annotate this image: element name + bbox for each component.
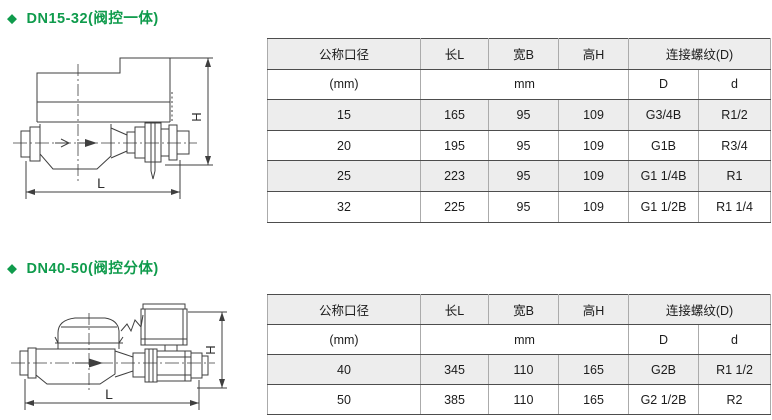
cell-b: 110 bbox=[489, 355, 559, 385]
cell-thread-d: R1/2 bbox=[699, 100, 771, 131]
dim-label-l: L bbox=[105, 386, 113, 402]
cell-h: 165 bbox=[559, 355, 629, 385]
table-row: 15 165 95 109 G3/4B R1/2 bbox=[268, 100, 771, 131]
col-header-length: 长L bbox=[421, 295, 489, 325]
meter-body-outline bbox=[36, 349, 115, 384]
table-row: 32 225 95 109 G1 1/2B R1 1/4 bbox=[268, 191, 771, 222]
col-header-height: 高H bbox=[559, 39, 629, 70]
cell-dn: 20 bbox=[268, 130, 421, 161]
unit-thread-d: d bbox=[699, 325, 771, 355]
cell-l: 345 bbox=[421, 355, 489, 385]
table-row: 50 385 110 165 G2 1/2B R2 bbox=[268, 385, 771, 415]
cell-dn: 25 bbox=[268, 161, 421, 192]
union-nut bbox=[145, 349, 157, 382]
spec-sheet-page: ◆ DN15-32(阀控一体) bbox=[0, 0, 772, 420]
cell-dn: 32 bbox=[268, 191, 421, 222]
cell-b: 95 bbox=[489, 161, 559, 192]
table-row: 20 195 95 109 G1B R3/4 bbox=[268, 130, 771, 161]
cell-h: 109 bbox=[559, 130, 629, 161]
unit-dims: mm bbox=[421, 69, 629, 100]
cell-h: 109 bbox=[559, 100, 629, 131]
meter-diagram-dn15-32: H L bbox=[5, 42, 260, 237]
flow-arrow-icon bbox=[85, 139, 97, 147]
cell-dn: 40 bbox=[268, 355, 421, 385]
col-header-diameter: 公称口径 bbox=[268, 39, 421, 70]
register-dome-outline bbox=[58, 318, 119, 343]
table-unit-row: (mm) mm D d bbox=[268, 69, 771, 100]
cell-thread-D: G2B bbox=[629, 355, 699, 385]
cell-dn: 50 bbox=[268, 385, 421, 415]
cell-l: 165 bbox=[421, 100, 489, 131]
spec-table-dn40-50: 公称口径 长L 宽B 高H 连接螺纹(D) (mm) mm D d 40 345… bbox=[267, 294, 771, 415]
dim-label-h: H bbox=[203, 345, 218, 354]
section-title-text: DN40-50(阀控分体) bbox=[27, 257, 159, 278]
actuator-box-outline bbox=[141, 309, 187, 345]
cell-b: 95 bbox=[489, 191, 559, 222]
section-title-text: DN15-32(阀控一体) bbox=[27, 7, 159, 28]
cell-thread-D: G1 1/2B bbox=[629, 191, 699, 222]
cell-thread-d: R1 1/4 bbox=[699, 191, 771, 222]
cell-l: 225 bbox=[421, 191, 489, 222]
cell-l: 223 bbox=[421, 161, 489, 192]
col-header-height: 高H bbox=[559, 295, 629, 325]
meter-body-outline bbox=[40, 124, 111, 169]
cell-thread-d: R1 bbox=[699, 161, 771, 192]
spec-table-dn15-32: 公称口径 长L 宽B 高H 连接螺纹(D) (mm) mm D d 15 165… bbox=[267, 38, 771, 223]
cell-thread-D: G1 1/4B bbox=[629, 161, 699, 192]
cell-thread-d: R2 bbox=[699, 385, 771, 415]
section-title-dn40-50: ◆ DN40-50(阀控分体) bbox=[7, 257, 159, 278]
table-row: 40 345 110 165 G2B R1 1/2 bbox=[268, 355, 771, 385]
actuator-box-cap bbox=[143, 304, 185, 309]
table-row: 25 223 95 109 G1 1/4B R1 bbox=[268, 161, 771, 192]
col-header-width: 宽B bbox=[489, 295, 559, 325]
col-header-width: 宽B bbox=[489, 39, 559, 70]
table-header-row: 公称口径 长L 宽B 高H 连接螺纹(D) bbox=[268, 39, 771, 70]
cell-b: 95 bbox=[489, 100, 559, 131]
unit-thread-D: D bbox=[629, 325, 699, 355]
cell-h: 109 bbox=[559, 191, 629, 222]
diamond-bullet-icon: ◆ bbox=[7, 262, 18, 275]
unit-thread-D: D bbox=[629, 69, 699, 100]
cell-b: 110 bbox=[489, 385, 559, 415]
cell-thread-d: R3/4 bbox=[699, 130, 771, 161]
cell-dn: 15 bbox=[268, 100, 421, 131]
meter-diagram-dn40-50: H L bbox=[5, 287, 255, 420]
dim-label-l: L bbox=[97, 175, 105, 191]
table-header-row: 公称口径 长L 宽B 高H 连接螺纹(D) bbox=[268, 295, 771, 325]
register-box-outline bbox=[37, 58, 170, 122]
col-header-length: 长L bbox=[421, 39, 489, 70]
cell-h: 109 bbox=[559, 161, 629, 192]
table-unit-row: (mm) mm D d bbox=[268, 325, 771, 355]
diamond-bullet-icon: ◆ bbox=[7, 12, 18, 25]
unit-dims: mm bbox=[421, 325, 629, 355]
ball-valve-body bbox=[157, 351, 191, 381]
seal-wire bbox=[121, 315, 143, 331]
cell-thread-D: G3/4B bbox=[629, 100, 699, 131]
cell-l: 195 bbox=[421, 130, 489, 161]
cell-thread-D: G2 1/2B bbox=[629, 385, 699, 415]
section-title-dn15-32: ◆ DN15-32(阀控一体) bbox=[7, 7, 159, 28]
col-header-thread: 连接螺纹(D) bbox=[629, 295, 771, 325]
cell-b: 95 bbox=[489, 130, 559, 161]
col-header-thread: 连接螺纹(D) bbox=[629, 39, 771, 70]
cell-h: 165 bbox=[559, 385, 629, 415]
unit-diameter: (mm) bbox=[268, 69, 421, 100]
flow-arrow-icon bbox=[89, 359, 103, 368]
flow-arrow-icon bbox=[55, 139, 69, 147]
col-header-diameter: 公称口径 bbox=[268, 295, 421, 325]
cell-thread-D: G1B bbox=[629, 130, 699, 161]
unit-diameter: (mm) bbox=[268, 325, 421, 355]
dim-label-h: H bbox=[189, 112, 204, 121]
unit-thread-d: d bbox=[699, 69, 771, 100]
cell-thread-d: R1 1/2 bbox=[699, 355, 771, 385]
cell-l: 385 bbox=[421, 385, 489, 415]
